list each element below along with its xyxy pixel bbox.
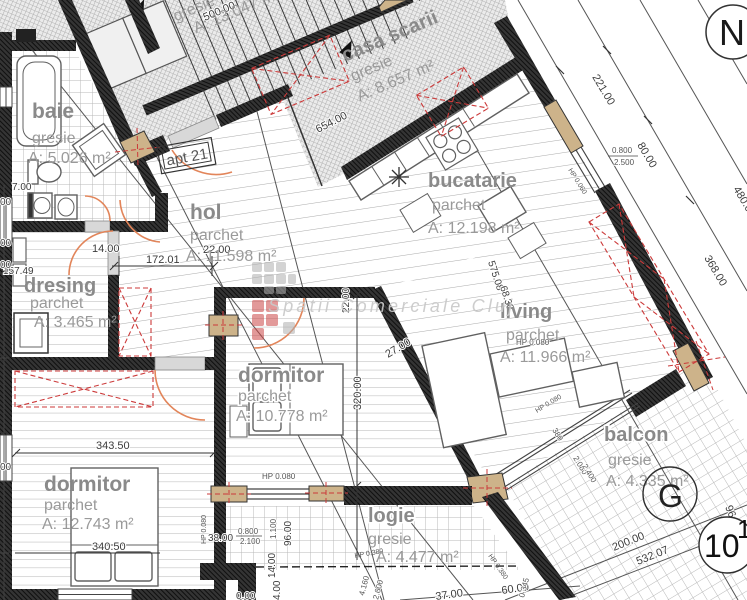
svg-text:A: 5.026 m²: A: 5.026 m²: [28, 150, 111, 167]
svg-text:10: 10: [704, 528, 740, 564]
svg-text:340.50: 340.50: [92, 541, 126, 553]
svg-text:4.00: 4.00: [272, 580, 283, 600]
svg-text:0.00: 0.00: [236, 591, 256, 600]
svg-text:A: 10.778 m²: A: 10.778 m²: [236, 408, 328, 425]
svg-text:A: 11.966 m²: A: 11.966 m²: [500, 349, 591, 366]
svg-text:1.100: 1.100: [269, 518, 278, 539]
svg-text:N: N: [719, 12, 745, 53]
svg-text:dresing: dresing: [24, 275, 96, 297]
svg-text:parchet: parchet: [44, 497, 98, 514]
svg-text:00: 00: [0, 238, 12, 249]
svg-text:00: 00: [0, 197, 12, 208]
svg-text:parchet: parchet: [432, 197, 486, 214]
svg-text:A: 12.198 m²: A: 12.198 m²: [428, 220, 520, 237]
svg-text:HP 0.080: HP 0.080: [201, 515, 208, 544]
svg-text:gresie: gresie: [368, 531, 412, 548]
svg-text:parchet: parchet: [30, 295, 84, 312]
svg-text:parchet: parchet: [506, 327, 560, 344]
svg-text:baie: baie: [32, 100, 74, 123]
svg-text:14.00: 14.00: [267, 553, 278, 578]
svg-text:343.50: 343.50: [96, 440, 130, 452]
svg-text:gresie: gresie: [32, 130, 76, 147]
svg-text:dormitor: dormitor: [238, 364, 324, 387]
svg-text:A: 12.743 m²: A: 12.743 m²: [42, 516, 134, 533]
svg-text:parchet: parchet: [190, 227, 244, 244]
svg-text:320.00: 320.00: [352, 376, 364, 410]
svg-text:dormitor: dormitor: [44, 473, 130, 496]
svg-text:0.800: 0.800: [612, 146, 633, 155]
svg-text:00: 00: [0, 260, 12, 271]
svg-text:0.800: 0.800: [238, 527, 259, 536]
svg-text:parchet: parchet: [238, 388, 292, 405]
svg-text:A: 11.598 m²: A: 11.598 m²: [186, 248, 277, 265]
svg-text:gresie: gresie: [608, 452, 652, 469]
svg-text:2.500: 2.500: [614, 158, 635, 167]
svg-text:1: 1: [737, 514, 747, 544]
svg-text:7.00: 7.00: [12, 182, 32, 193]
svg-text:logie: logie: [368, 505, 415, 527]
svg-text:38.00: 38.00: [208, 533, 233, 544]
svg-text:14.00: 14.00: [92, 243, 120, 255]
svg-text:A: 3.465 m²: A: 3.465 m²: [34, 314, 117, 331]
svg-text:balcon: balcon: [604, 424, 668, 446]
svg-text:96.00: 96.00: [283, 521, 294, 546]
svg-text:2.100: 2.100: [240, 537, 261, 546]
svg-text:00: 00: [0, 462, 12, 473]
svg-text:bucatarie: bucatarie: [428, 170, 517, 192]
svg-text:HP 0.080: HP 0.080: [262, 472, 296, 481]
svg-text:A: 4.477 m²: A: 4.477 m²: [376, 549, 459, 566]
svg-text:172.01: 172.01: [146, 254, 180, 266]
svg-text:Spatii Comerciale Cluj: Spatii Comerciale Cluj: [268, 296, 515, 316]
svg-text:hol: hol: [190, 201, 222, 224]
svg-text:G: G: [658, 478, 683, 514]
